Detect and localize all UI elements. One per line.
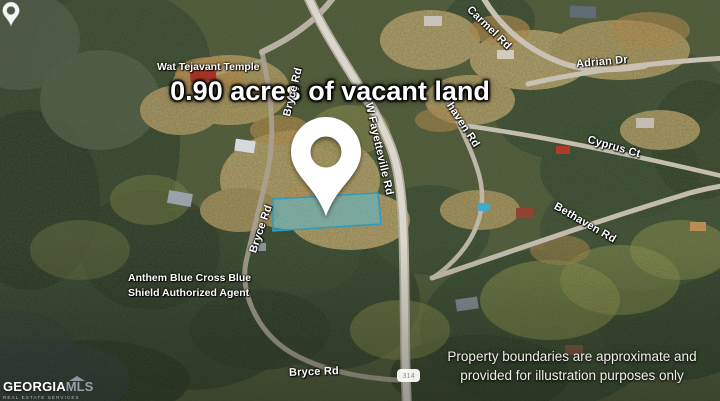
georgia-mls-watermark: GEORGIAMLS REAL ESTATE SERVICES (3, 379, 93, 400)
roof-icon (69, 376, 85, 381)
brand-mls: MLS (66, 379, 93, 394)
poi-label-agent: Anthem Blue Cross Blue Shield Authorized… (128, 271, 248, 300)
route-shield-314: 314 (397, 369, 420, 382)
disclaimer-line1: Property boundaries are approximate and (428, 348, 716, 367)
poi-label-agent-line2: Shield Authorized Agent (128, 286, 248, 301)
road-label-bryce-south: Bryce Rd (289, 365, 339, 379)
disclaimer-text: Property boundaries are approximate and … (428, 348, 716, 385)
page-title: 0.90 acres of vacant land (170, 76, 490, 107)
poi-label-temple: Wat Tejavant Temple (157, 61, 260, 73)
temple-pin-icon (0, 0, 22, 30)
brand-tagline: REAL ESTATE SERVICES (3, 395, 93, 400)
satellite-map-image: 0.90 acres of vacant land Wat Tejavant T… (0, 0, 720, 401)
poi-label-agent-line1: Anthem Blue Cross Blue (128, 271, 248, 286)
disclaimer-line2: provided for illustration purposes only (428, 367, 716, 386)
route-shield-number: 314 (402, 371, 415, 380)
brand-georgia: GEORGIA (3, 379, 66, 394)
